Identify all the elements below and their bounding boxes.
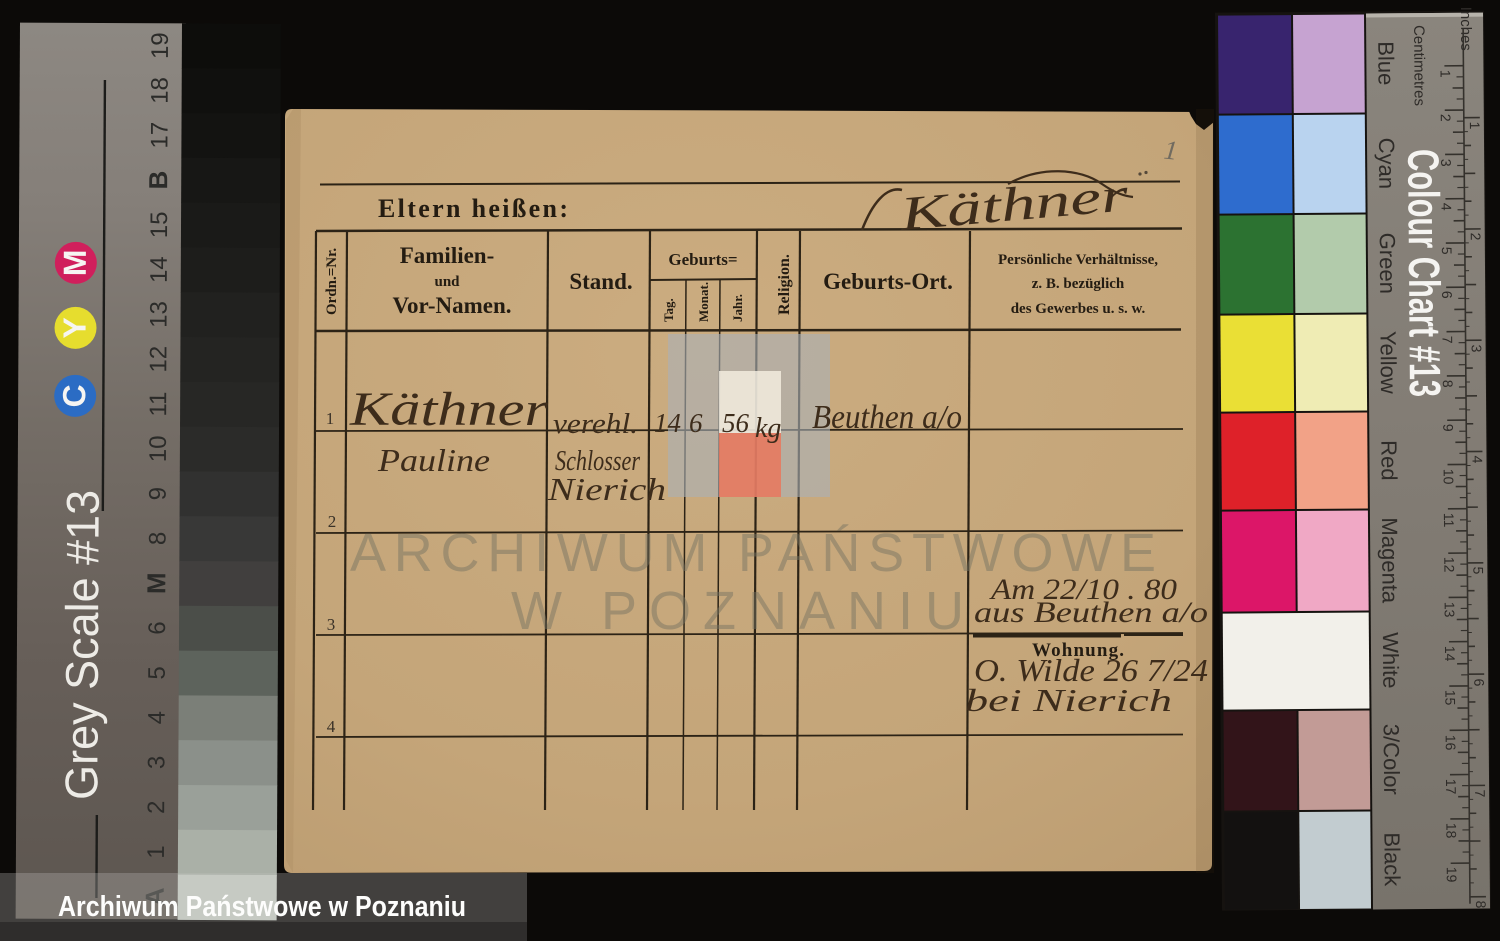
svg-text:8: 8 (1473, 901, 1489, 909)
svg-text:2: 2 (143, 801, 170, 814)
svg-text:4: 4 (327, 717, 336, 736)
svg-text:2: 2 (1468, 233, 1484, 241)
svg-text:Monat.: Monat. (696, 282, 711, 322)
svg-text:Grey Scale #13: Grey Scale #13 (55, 490, 109, 800)
svg-text:9: 9 (1440, 424, 1456, 432)
svg-text:Beuthen a/o: Beuthen a/o (812, 399, 962, 436)
svg-text:15: 15 (1442, 690, 1458, 706)
svg-text:Colour Chart #13: Colour Chart #13 (1398, 149, 1449, 397)
svg-text:13: 13 (146, 301, 173, 328)
svg-text:Religion.: Religion. (776, 254, 793, 315)
svg-text:Black: Black (1379, 832, 1404, 887)
svg-text:15: 15 (146, 211, 173, 238)
svg-text:11: 11 (1441, 513, 1457, 528)
svg-text:17: 17 (146, 122, 173, 149)
svg-text:5: 5 (1470, 567, 1486, 575)
svg-text:17: 17 (1443, 779, 1459, 795)
svg-text:16: 16 (1443, 735, 1459, 751)
svg-text:12: 12 (1441, 557, 1457, 573)
svg-text:Geburts=: Geburts= (668, 250, 737, 269)
svg-text:1: 1 (143, 845, 170, 858)
svg-text:Blue: Blue (1373, 41, 1398, 85)
svg-text:7: 7 (1472, 790, 1488, 798)
svg-text:5: 5 (1439, 247, 1455, 255)
svg-text:Archiwum Państwowe w Poznaniu: Archiwum Państwowe w Poznaniu (58, 891, 466, 923)
svg-text:4: 4 (1469, 456, 1485, 464)
svg-text:Yellow: Yellow (1375, 331, 1400, 394)
svg-text:Familien-: Familien- (400, 243, 495, 268)
svg-text:Ordn.=Nr.: Ordn.=Nr. (324, 248, 340, 315)
svg-text:6: 6 (1471, 679, 1487, 687)
svg-text:14: 14 (1442, 646, 1458, 662)
svg-text:11: 11 (145, 392, 172, 417)
svg-text:1: 1 (1437, 70, 1453, 78)
svg-text:B: B (143, 171, 173, 190)
svg-text:8: 8 (144, 532, 171, 545)
svg-text:4: 4 (144, 711, 171, 724)
svg-text:kg: kg (755, 413, 781, 444)
svg-text:des Gewerbes u. s. w.: des Gewerbes u. s. w. (1011, 301, 1146, 317)
svg-text:Y: Y (56, 317, 92, 339)
svg-text:14: 14 (654, 408, 681, 438)
svg-text:3/Color: 3/Color (1379, 724, 1405, 795)
svg-text:z. B. bezüglich: z. B. bezüglich (1032, 276, 1125, 292)
svg-text:bei Nierich: bei Nierich (965, 682, 1172, 718)
svg-text:5: 5 (144, 666, 171, 679)
svg-text:9: 9 (145, 487, 172, 500)
svg-text:M: M (57, 249, 93, 276)
svg-text:12: 12 (145, 346, 172, 373)
svg-text:2: 2 (328, 512, 337, 531)
svg-text:Red: Red (1376, 440, 1401, 481)
svg-text:Nierich: Nierich (547, 471, 666, 507)
svg-text:Vor-Namen.: Vor-Namen. (392, 293, 511, 318)
svg-text:4: 4 (1438, 203, 1454, 211)
svg-text:M: M (141, 572, 171, 594)
svg-text:19: 19 (147, 32, 174, 59)
svg-text:Magenta: Magenta (1377, 517, 1403, 604)
svg-text:8: 8 (1440, 380, 1456, 388)
svg-text:verehl.: verehl. (553, 409, 638, 440)
svg-text:6: 6 (689, 408, 703, 438)
svg-text:10: 10 (1441, 469, 1457, 485)
svg-text:3: 3 (143, 756, 170, 769)
svg-text:18: 18 (147, 77, 174, 104)
svg-text:Stand.: Stand. (569, 269, 632, 294)
svg-text:Geburts-Ort.: Geburts-Ort. (823, 269, 953, 294)
svg-text:3: 3 (1438, 159, 1454, 167)
svg-text:3: 3 (1469, 345, 1485, 353)
svg-text:Eltern heißen:: Eltern heißen: (378, 194, 568, 223)
svg-text:C: C (56, 384, 92, 407)
svg-text:Jahr.: Jahr. (730, 294, 745, 322)
svg-text:2: 2 (1438, 114, 1454, 122)
svg-text:6: 6 (144, 621, 171, 634)
svg-text:7: 7 (1440, 336, 1456, 344)
svg-text:1: 1 (326, 409, 335, 428)
svg-text:Centimetres: Centimetres (1410, 25, 1428, 106)
svg-text:14: 14 (146, 256, 173, 283)
svg-text:18: 18 (1443, 823, 1459, 839)
svg-text:13: 13 (1442, 602, 1458, 618)
svg-text:und: und (434, 274, 460, 290)
svg-text:56: 56 (722, 408, 750, 438)
svg-text:1: 1 (1467, 122, 1483, 130)
svg-text:19: 19 (1444, 867, 1460, 883)
svg-text:Cyan: Cyan (1374, 138, 1399, 190)
svg-text:Käthner: Käthner (349, 383, 549, 436)
svg-text:6: 6 (1439, 291, 1455, 299)
svg-text:Green: Green (1375, 233, 1400, 294)
svg-text:Inches: Inches (1457, 7, 1474, 51)
svg-text:Tag.: Tag. (661, 298, 676, 322)
svg-text:Persönliche Verhältnisse,: Persönliche Verhältnisse, (998, 252, 1158, 268)
svg-text:White: White (1378, 632, 1403, 688)
svg-text:aus Beuthen a/o: aus Beuthen a/o (974, 596, 1208, 629)
svg-text:Pauline: Pauline (377, 442, 490, 478)
svg-text:3: 3 (327, 615, 336, 634)
svg-text:10: 10 (145, 435, 172, 462)
